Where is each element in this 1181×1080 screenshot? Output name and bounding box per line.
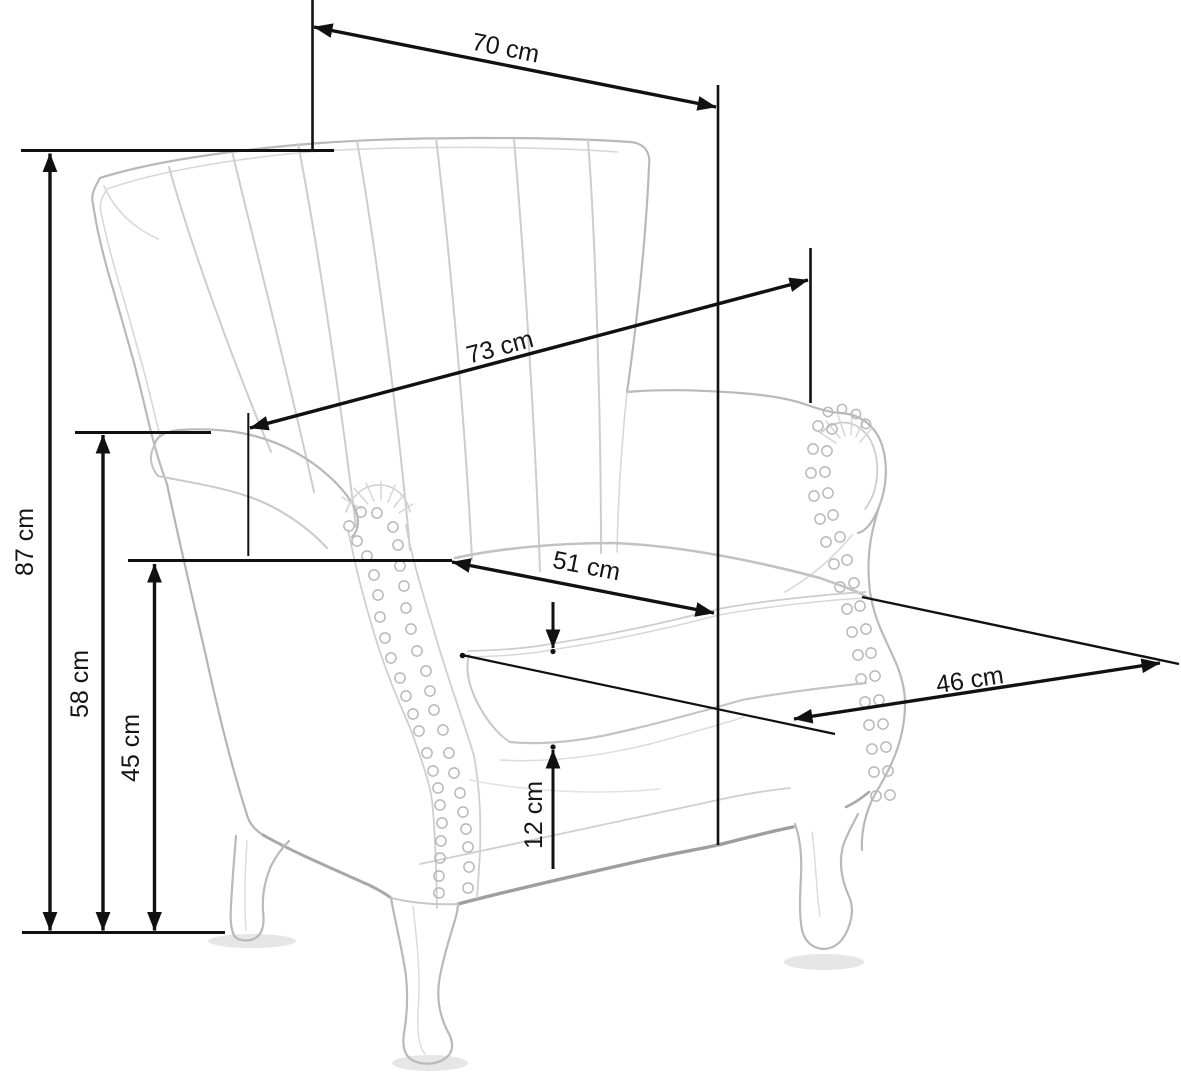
- svg-text:58 cm: 58 cm: [66, 650, 94, 718]
- svg-text:87 cm: 87 cm: [11, 508, 39, 576]
- svg-text:45 cm: 45 cm: [117, 714, 145, 782]
- svg-text:46 cm: 46 cm: [934, 661, 1006, 699]
- svg-text:70 cm: 70 cm: [469, 28, 541, 69]
- svg-text:51 cm: 51 cm: [550, 546, 622, 586]
- svg-text:12 cm: 12 cm: [520, 781, 548, 849]
